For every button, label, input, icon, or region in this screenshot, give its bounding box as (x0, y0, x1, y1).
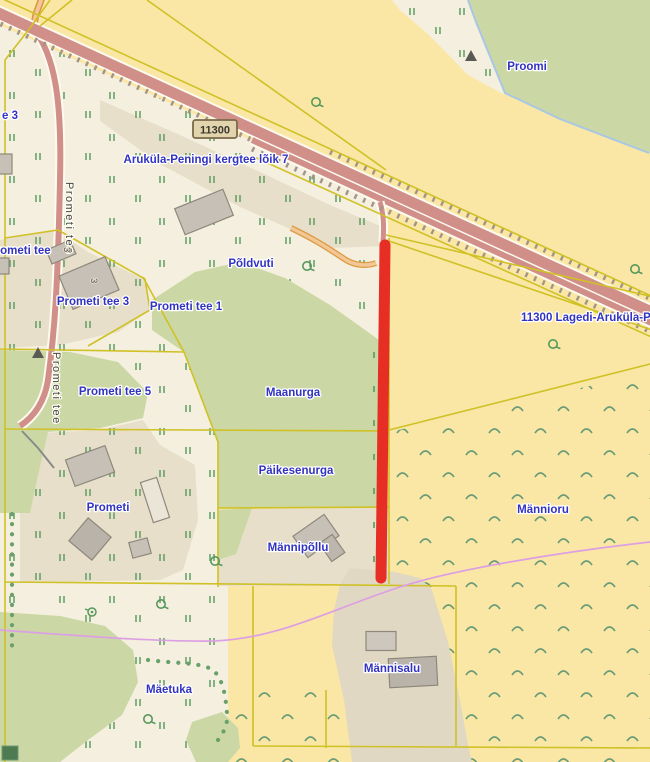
label-prometi-tee-5: Prometi tee 5 (79, 386, 152, 398)
road-ref-text: 11300 (200, 125, 230, 137)
label-maanurga: Maanurga (266, 387, 321, 399)
map-canvas[interactable]: 11300 e 3 Prometi tee 1 Prometi tee Prom… (0, 0, 650, 762)
label-prometi: Prometi (87, 502, 130, 514)
dark-green-plot (2, 746, 18, 760)
building (366, 632, 396, 651)
house-number: 3 (88, 278, 99, 283)
label-paikesenurga: Päikesenurga (259, 465, 334, 477)
building (0, 154, 12, 174)
label-mannisalu: Männisalu (364, 663, 420, 675)
house-number: 3 (61, 247, 72, 252)
street-label-prometi-tee-upper: Prometi tee (63, 182, 75, 255)
map-viewport[interactable]: 11300 e 3 Prometi tee 1 Prometi tee Prom… (0, 0, 650, 762)
scrub-caret-marks (228, 688, 352, 762)
selected-route-highlight[interactable] (381, 245, 385, 578)
label-prometi-tee-1: Prometi tee 1 (150, 301, 223, 313)
label-proomi: Proomi (507, 61, 547, 73)
label-poldvuti: Põldvuti (228, 258, 273, 270)
label-kergtee-route: Aruküla-Peningi kergtee lõik 7 (124, 154, 289, 166)
label-mannioru: Männioru (517, 504, 569, 516)
building (0, 258, 9, 274)
label-prometi-tee-clipped: Prometi tee (0, 245, 51, 257)
label-maetuka: Mäetuka (146, 684, 193, 696)
label-mannipollu: Männipõllu (268, 542, 329, 554)
label-partial-tee-3: e 3 (2, 110, 18, 122)
road-ref-badge: 11300 (193, 120, 237, 138)
label-prometi-tee-3: Prometi tee 3 (57, 296, 129, 308)
street-label-prometi-tee-lower: Prometi tee (50, 352, 62, 425)
label-highway-name: 11300 Lagedi-Aruküla-Pen (521, 312, 650, 324)
